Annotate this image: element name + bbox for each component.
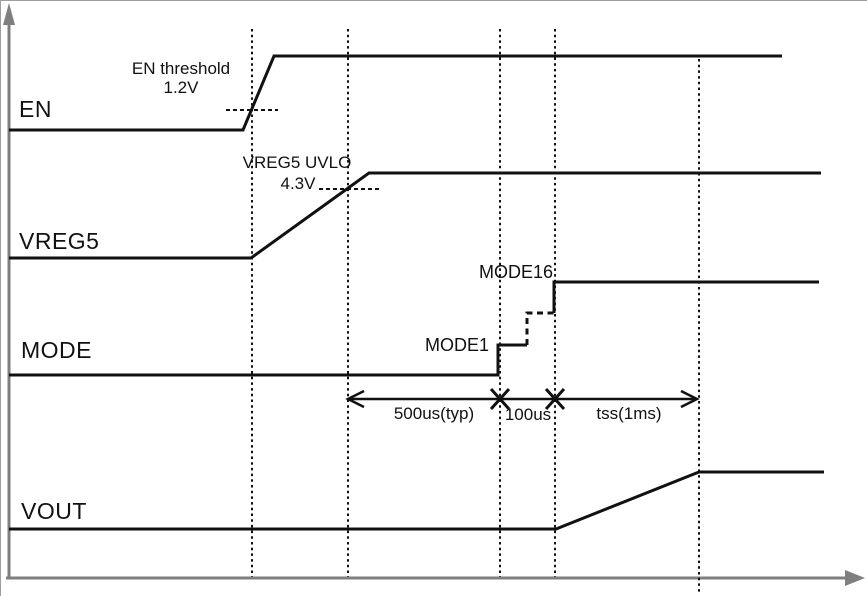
mode1-step-label: MODE1 bbox=[425, 335, 489, 356]
waveform-canvas bbox=[1, 1, 867, 596]
vertical-axis-arrowhead bbox=[3, 3, 15, 25]
horizontal-axis-arrowhead bbox=[845, 570, 865, 586]
signal-label-vreg5: VREG5 bbox=[19, 228, 99, 254]
waveform-mode-seg-3 bbox=[554, 282, 819, 313]
signal-label-mode: MODE bbox=[21, 337, 92, 363]
signal-label-en: EN bbox=[19, 96, 52, 122]
time-span-100us-label: 100us bbox=[505, 405, 551, 425]
en-threshold-value: 1.2V bbox=[164, 78, 199, 98]
vreg5-uvlo-label: VREG5 UVLO bbox=[243, 153, 352, 173]
timing-diagram: EN VREG5 MODE VOUT EN threshold 1.2V VRE… bbox=[0, 0, 867, 596]
waveform-en bbox=[9, 56, 782, 130]
mode16-step-label: MODE16 bbox=[479, 262, 553, 283]
en-threshold-label: EN threshold bbox=[132, 59, 230, 79]
signal-label-vout: VOUT bbox=[21, 498, 87, 524]
vreg5-uvlo-value: 4.3V bbox=[281, 174, 316, 194]
time-span-500us-label: 500us(typ) bbox=[394, 404, 474, 424]
waveform-mode-seg-2 bbox=[527, 313, 554, 345]
waveform-vout bbox=[9, 472, 824, 529]
time-span-tss-label: tss(1ms) bbox=[596, 404, 661, 424]
